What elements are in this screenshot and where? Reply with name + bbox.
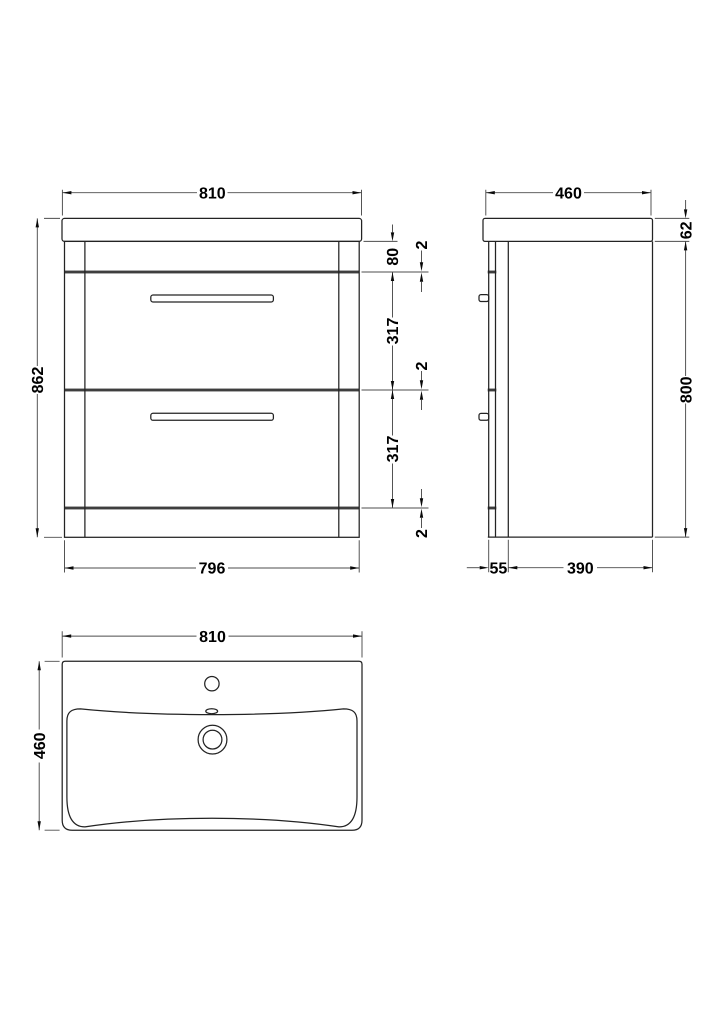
svg-text:80: 80 bbox=[385, 248, 402, 266]
svg-text:800: 800 bbox=[678, 376, 695, 403]
svg-text:862: 862 bbox=[30, 367, 47, 394]
svg-text:317: 317 bbox=[385, 318, 402, 345]
svg-text:810: 810 bbox=[199, 629, 226, 646]
svg-text:796: 796 bbox=[199, 561, 226, 578]
svg-text:2: 2 bbox=[414, 529, 431, 538]
svg-text:460: 460 bbox=[32, 732, 49, 759]
svg-text:810: 810 bbox=[199, 185, 226, 202]
svg-text:317: 317 bbox=[385, 436, 402, 463]
svg-text:390: 390 bbox=[567, 560, 594, 577]
svg-text:460: 460 bbox=[555, 185, 582, 202]
svg-text:2: 2 bbox=[414, 361, 431, 370]
svg-text:62: 62 bbox=[678, 221, 695, 239]
svg-text:2: 2 bbox=[414, 240, 431, 249]
svg-text:55: 55 bbox=[490, 560, 508, 577]
